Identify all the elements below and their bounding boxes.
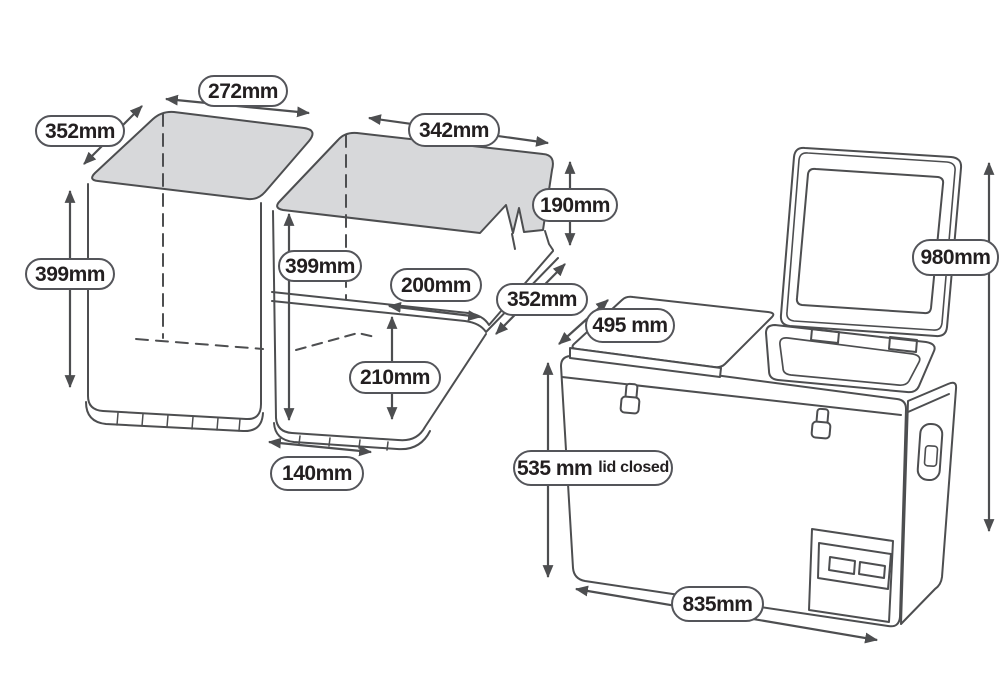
left-box-depth-value: 352mm bbox=[45, 121, 115, 142]
left-box-height-value: 399mm bbox=[35, 264, 105, 285]
fridge-depth-label: 495 mm bbox=[585, 308, 675, 343]
left-box-top-face bbox=[92, 112, 312, 199]
left-box-height-label: 399mm bbox=[25, 258, 115, 290]
fridge-total-height-value: 980mm bbox=[921, 247, 991, 268]
middle-box-width-value: 342mm bbox=[419, 120, 489, 141]
middle-box-step-height-value: 190mm bbox=[540, 195, 610, 216]
fridge-width-value: 835mm bbox=[683, 594, 753, 615]
middle-box-step-width-label: 200mm bbox=[390, 268, 482, 302]
middle-box-lower-height-label: 210mm bbox=[349, 361, 441, 394]
fridge-depth-value: 495 mm bbox=[592, 315, 667, 336]
side-handle bbox=[917, 423, 943, 480]
middle-box-lower-width-label: 140mm bbox=[270, 456, 364, 491]
fridge-total-height-label: 980mm bbox=[912, 239, 999, 276]
middle-box-height-value: 399mm bbox=[285, 256, 355, 277]
fridge-body-height-label: 535 mm lid closed bbox=[513, 450, 673, 486]
left-box-width-value: 272mm bbox=[208, 81, 278, 102]
fridge-body-height-note: lid closed bbox=[598, 460, 669, 476]
middle-box-lower-height-value: 210mm bbox=[360, 367, 430, 388]
fridge-body-height-value: 535 mm bbox=[517, 458, 592, 479]
middle-box-step-width-value: 200mm bbox=[401, 275, 471, 296]
middle-box-step-height-label: 190mm bbox=[532, 188, 618, 222]
middle-box-depth-label: 352mm bbox=[496, 283, 588, 316]
middle-box-depth-value: 352mm bbox=[507, 289, 577, 310]
fridge-side-face bbox=[901, 383, 956, 624]
middle-box-lower-width-value: 140mm bbox=[282, 463, 352, 484]
middle-box-height-label: 399mm bbox=[278, 250, 362, 282]
left-box-width-label: 272mm bbox=[198, 75, 288, 107]
middle-box-width-label: 342mm bbox=[408, 113, 500, 147]
left-box-depth-label: 352mm bbox=[35, 115, 125, 147]
middle-box-top-face bbox=[277, 133, 553, 233]
fridge-drawing bbox=[561, 148, 961, 626]
product-dimensions-diagram: 272mm 352mm 399mm 342mm 190mm 399mm 200m… bbox=[0, 0, 1000, 675]
fridge-width-label: 835mm bbox=[671, 586, 764, 622]
diagram-canvas bbox=[0, 0, 1000, 675]
